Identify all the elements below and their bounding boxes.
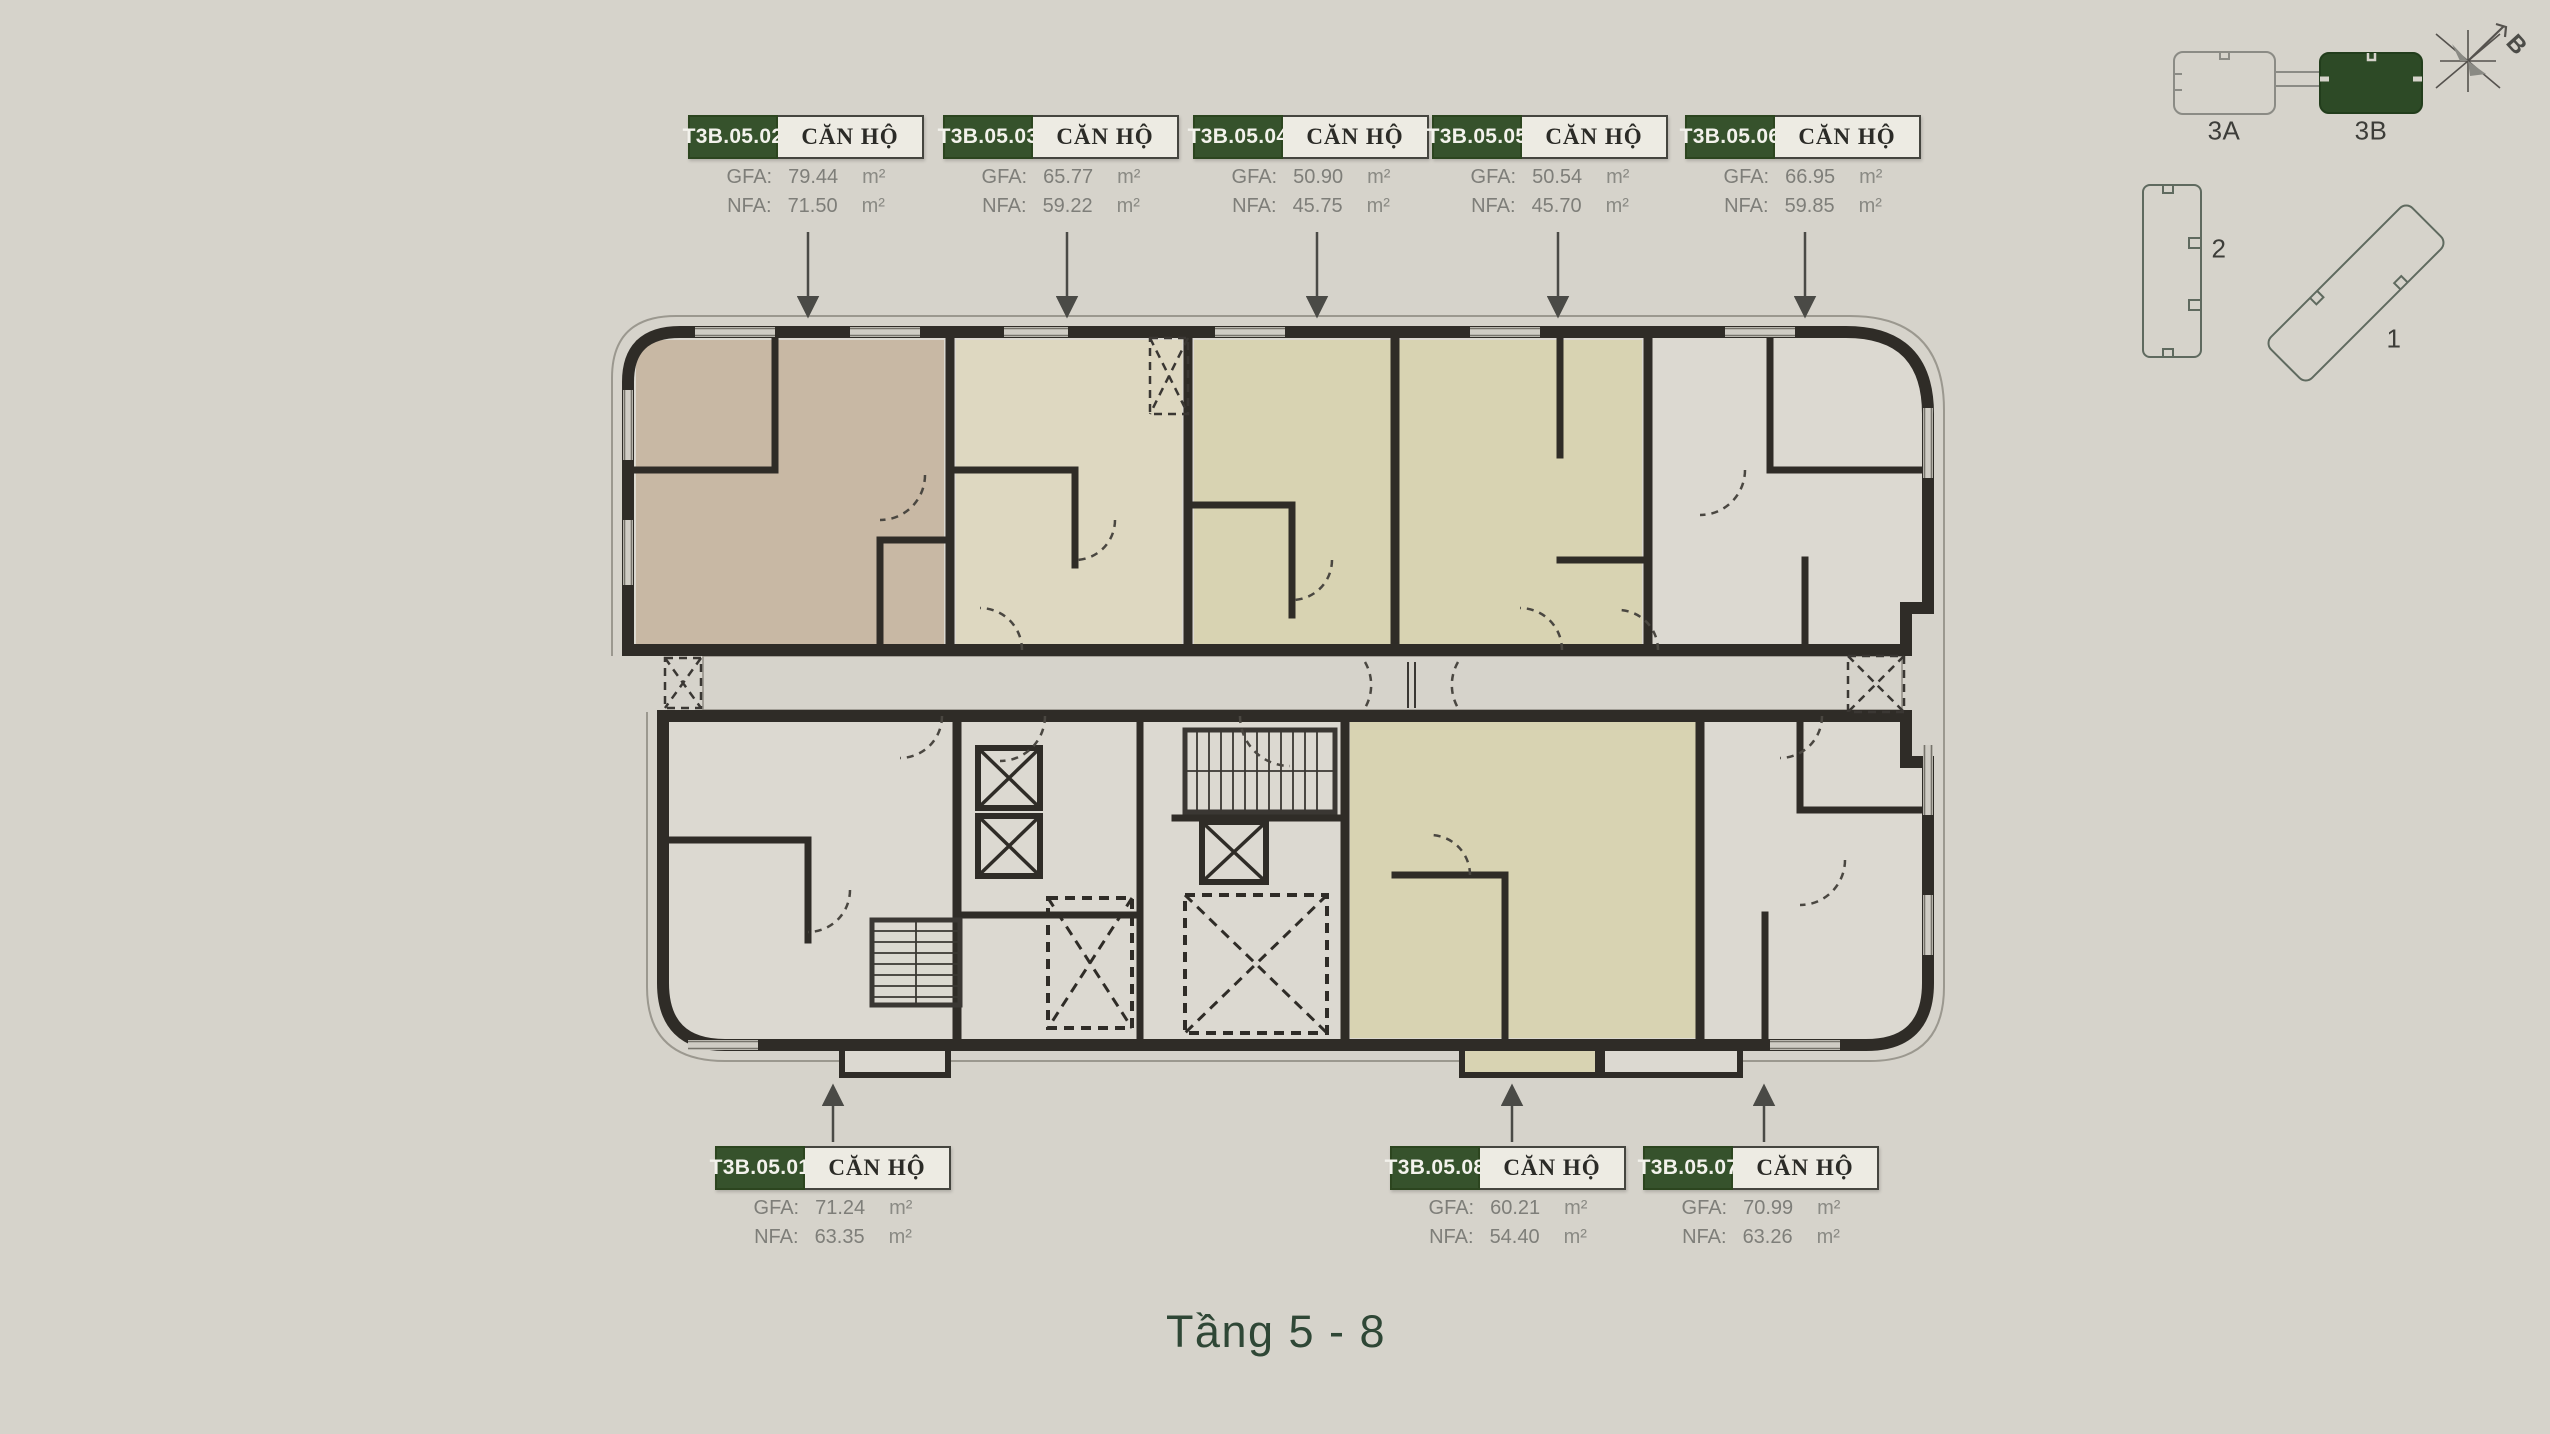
unit-nfa-row: NFA:63.26m² bbox=[1643, 1226, 1879, 1248]
page-title: Tầng 5 - 8 bbox=[1166, 1306, 1386, 1358]
unit-gfa-row: GFA:70.99m² bbox=[1643, 1197, 1879, 1219]
unit-gfa-row: GFA:79.44m² bbox=[688, 166, 924, 188]
unit-type-label: CĂN HỘ bbox=[1283, 115, 1429, 159]
unit-nfa-row: NFA:63.35m² bbox=[715, 1226, 951, 1248]
unit-callout-t3b-05-03: T3B.05.03 CĂN HỘ GFA:65.77m² NFA:59.22m² bbox=[943, 115, 1179, 217]
unit-type-label: CĂN HỘ bbox=[1480, 1146, 1626, 1190]
unit-type-label: CĂN HỘ bbox=[805, 1146, 951, 1190]
unit-id-badge: T3B.05.04 bbox=[1193, 115, 1283, 159]
unit-gfa-row: GFA:66.95m² bbox=[1685, 166, 1921, 188]
minimap-block-1-shape bbox=[2265, 202, 2447, 384]
minimap-block-3b-label: 3B bbox=[2355, 116, 2388, 147]
floor-plan-page: T3B.05.02 CĂN HỘ GFA:79.44m² NFA:71.50m²… bbox=[0, 0, 2550, 1434]
unit-callout-t3b-05-07: T3B.05.07 CĂN HỘ GFA:70.99m² NFA:63.26m² bbox=[1643, 1146, 1879, 1248]
unit-id-badge: T3B.05.07 bbox=[1643, 1146, 1733, 1190]
apartment-03-zone bbox=[956, 340, 1182, 650]
corridor bbox=[703, 656, 1902, 710]
minimap-block-3b-shape bbox=[2320, 53, 2422, 113]
unit-callout-t3b-05-01: T3B.05.01 CĂN HỘ GFA:71.24m² NFA:63.35m² bbox=[715, 1146, 951, 1248]
unit-type-label: CĂN HỘ bbox=[1522, 115, 1668, 159]
unit-nfa-row: NFA:54.40m² bbox=[1390, 1226, 1626, 1248]
unit-type-label: CĂN HỘ bbox=[1775, 115, 1921, 159]
minimap-block-3a-label: 3A bbox=[2208, 116, 2241, 147]
minimap-block-2-shape bbox=[2143, 185, 2201, 357]
unit-nfa-row: NFA:59.22m² bbox=[943, 195, 1179, 217]
unit-nfa-row: NFA:59.85m² bbox=[1685, 195, 1921, 217]
unit-callout-t3b-05-08: T3B.05.08 CĂN HỘ GFA:60.21m² NFA:54.40m² bbox=[1390, 1146, 1626, 1248]
unit-gfa-row: GFA:65.77m² bbox=[943, 166, 1179, 188]
minimap-bridge bbox=[2275, 72, 2320, 86]
unit-gfa-row: GFA:71.24m² bbox=[715, 1197, 951, 1219]
unit-nfa-row: NFA:71.50m² bbox=[688, 195, 924, 217]
compass-icon bbox=[2436, 24, 2506, 92]
unit-nfa-row: NFA:45.70m² bbox=[1432, 195, 1668, 217]
unit-callout-t3b-05-05: T3B.05.05 CĂN HỘ GFA:50.54m² NFA:45.70m² bbox=[1432, 115, 1668, 217]
unit-id-badge: T3B.05.02 bbox=[688, 115, 778, 159]
minimap-block-2-label: 2 bbox=[2212, 234, 2227, 265]
unit-gfa-row: GFA:60.21m² bbox=[1390, 1197, 1626, 1219]
apartment-04-05-zone bbox=[1194, 340, 1642, 650]
minimap bbox=[2143, 24, 2506, 384]
apartment-02-zone bbox=[636, 340, 944, 650]
unit-id-badge: T3B.05.03 bbox=[943, 115, 1033, 159]
unit-type-label: CĂN HỘ bbox=[778, 115, 924, 159]
unit-nfa-row: NFA:45.75m² bbox=[1193, 195, 1429, 217]
unit-id-badge: T3B.05.06 bbox=[1685, 115, 1775, 159]
unit-type-label: CĂN HỘ bbox=[1733, 1146, 1879, 1190]
unit-callout-t3b-05-04: T3B.05.04 CĂN HỘ GFA:50.90m² NFA:45.75m² bbox=[1193, 115, 1429, 217]
unit-id-badge: T3B.05.05 bbox=[1432, 115, 1522, 159]
unit-gfa-row: GFA:50.90m² bbox=[1193, 166, 1429, 188]
unit-type-label: CĂN HỘ bbox=[1033, 115, 1179, 159]
unit-callout-t3b-05-02: T3B.05.02 CĂN HỘ GFA:79.44m² NFA:71.50m² bbox=[688, 115, 924, 217]
minimap-block-1-label: 1 bbox=[2387, 324, 2402, 355]
apartment-08-zone bbox=[1350, 722, 1696, 1038]
unit-callout-t3b-05-06: T3B.05.06 CĂN HỘ GFA:66.95m² NFA:59.85m² bbox=[1685, 115, 1921, 217]
unit-id-badge: T3B.05.08 bbox=[1390, 1146, 1480, 1190]
unit-id-badge: T3B.05.01 bbox=[715, 1146, 805, 1190]
minimap-block-3a-shape bbox=[2174, 52, 2275, 114]
unit-gfa-row: GFA:50.54m² bbox=[1432, 166, 1668, 188]
